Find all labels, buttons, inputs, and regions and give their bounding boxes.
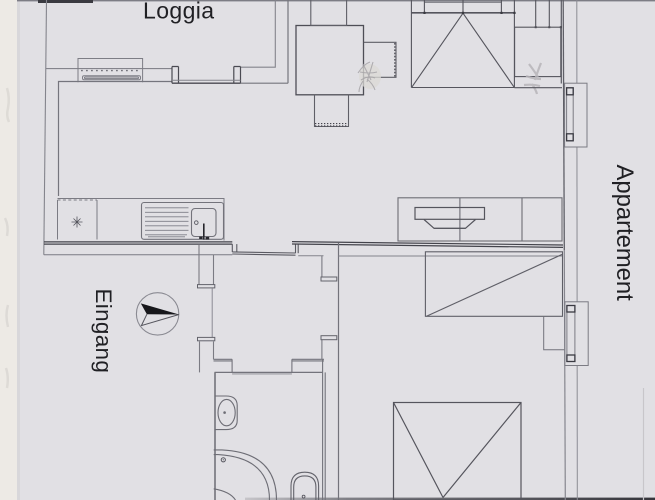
svg-text:Loggia: Loggia <box>143 0 214 24</box>
svg-text:Eingang: Eingang <box>91 289 116 374</box>
svg-text:Appartement: Appartement <box>611 165 638 302</box>
